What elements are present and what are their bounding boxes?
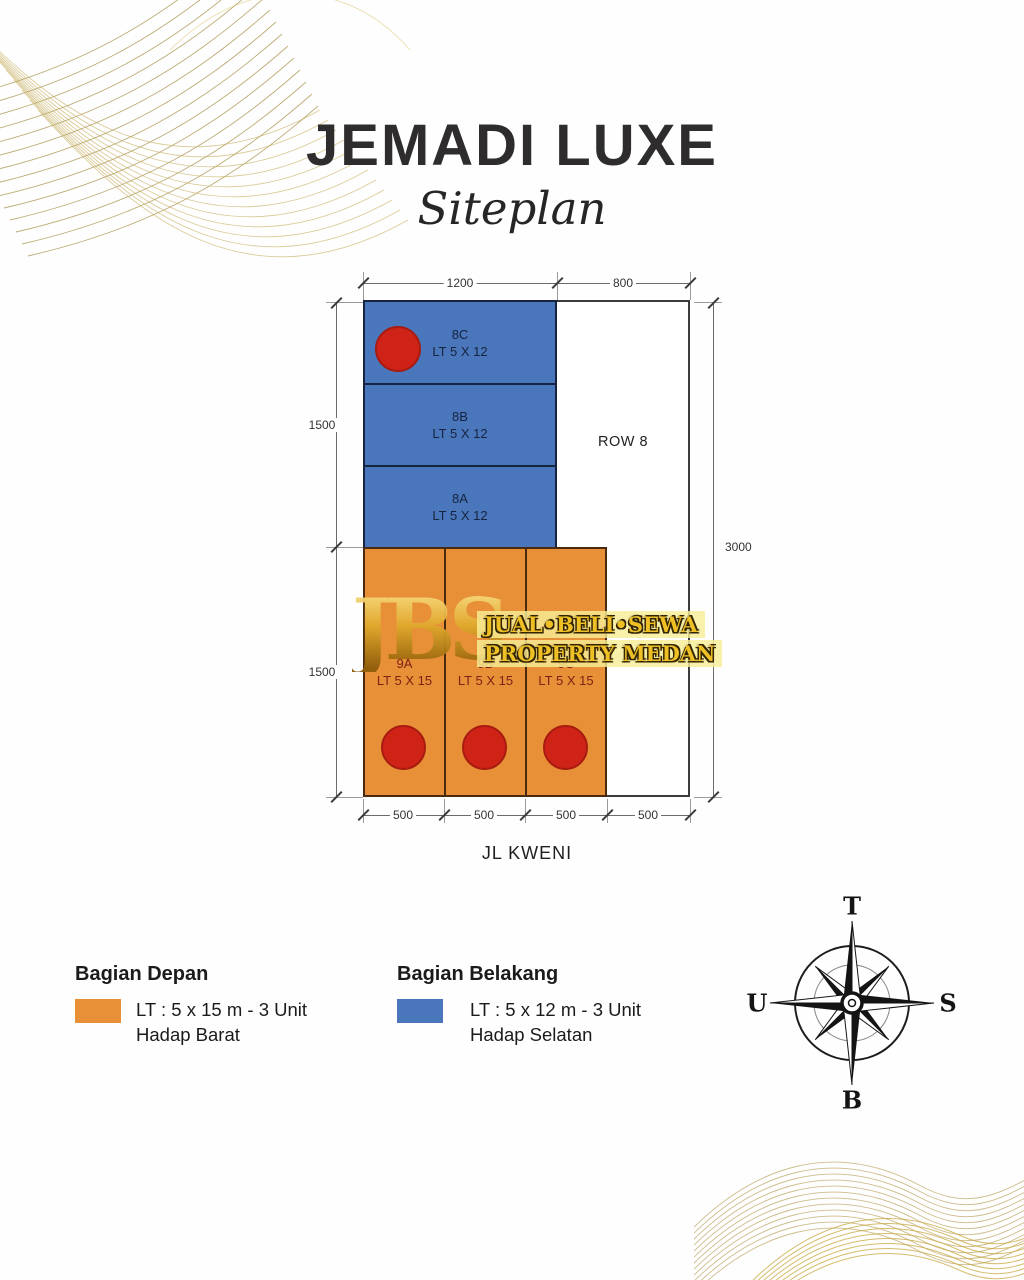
dim-ext [694, 797, 722, 798]
compass-letter-t: T [843, 892, 861, 921]
dim-ext [694, 302, 722, 303]
dim-label-1500-upper: 1500 [306, 418, 339, 432]
compass-letter-b: B [842, 1086, 862, 1115]
unit-size: LT 5 X 15 [538, 672, 593, 689]
legend-back-line1: LT : 5 x 12 m - 3 Unit [470, 997, 641, 1022]
watermark-line2: PROPERTY MEDAN [477, 640, 722, 667]
legend-front-line2: Hadap Barat [136, 1022, 307, 1047]
dim-line-right [713, 303, 714, 797]
legend-front-line1: LT : 5 x 15 m - 3 Unit [136, 997, 307, 1022]
dim-label-3000: 3000 [722, 540, 755, 554]
marker-dot-9c [543, 725, 588, 770]
unit-size: LT 5 X 12 [432, 507, 487, 524]
dim-ext [363, 799, 364, 823]
page-subtitle: Siteplan [0, 182, 1024, 235]
unit-id: 8C [452, 326, 469, 343]
compass-letter-u: U [747, 989, 768, 1018]
unit-id: 8A [452, 490, 468, 507]
unit-block-8a: 8A LT 5 X 12 [363, 465, 557, 549]
legend-back-line2: Hadap Selatan [470, 1022, 641, 1047]
dim-ext [444, 799, 445, 823]
dim-label-500-1: 500 [390, 808, 416, 822]
compass-rose-icon [762, 913, 942, 1093]
dim-label-800: 800 [610, 276, 636, 290]
dim-ext [363, 272, 364, 300]
unit-id: 8B [452, 408, 468, 425]
page-title: JEMADI LUXE [0, 112, 1024, 179]
dim-label-500-2: 500 [471, 808, 497, 822]
dim-ext [326, 797, 363, 798]
dim-ext [326, 302, 363, 303]
row-label: ROW 8 [598, 434, 648, 450]
dim-ext [607, 799, 608, 823]
legend-front-heading: Bagian Depan [75, 963, 208, 986]
legend-back-text: LT : 5 x 12 m - 3 Unit Hadap Selatan [470, 997, 641, 1047]
dim-label-1200: 1200 [444, 276, 477, 290]
legend-back-swatch [397, 999, 443, 1023]
wave-decoration-bottom-right [694, 1120, 1024, 1280]
dim-ext [326, 547, 363, 548]
marker-dot-9a [381, 725, 426, 770]
dim-line-top [363, 283, 690, 284]
siteplan-poster: JEMADI LUXE Siteplan 8C LT 5 X 12 8B LT … [0, 0, 1024, 1280]
dim-ext [690, 799, 691, 823]
marker-dot-9b [462, 725, 507, 770]
dim-label-1500-lower: 1500 [306, 665, 339, 679]
dim-ext [525, 799, 526, 823]
marker-dot-8c [375, 326, 421, 372]
dim-line-left [336, 303, 337, 797]
legend-back-heading: Bagian Belakang [397, 963, 558, 986]
unit-size: LT 5 X 12 [432, 343, 487, 360]
legend-front-text: LT : 5 x 15 m - 3 Unit Hadap Barat [136, 997, 307, 1047]
dim-ext [690, 272, 691, 300]
compass-letter-s: S [939, 989, 956, 1018]
street-label: JL KWENI [482, 843, 572, 864]
unit-block-8b: 8B LT 5 X 12 [363, 383, 557, 467]
unit-size: LT 5 X 12 [432, 425, 487, 442]
dim-label-500-4: 500 [635, 808, 661, 822]
watermark-line1: JUAL•BELI•SEWA [477, 611, 705, 638]
legend-front-swatch [75, 999, 121, 1023]
dim-ext [557, 272, 558, 300]
dim-label-500-3: 500 [553, 808, 579, 822]
